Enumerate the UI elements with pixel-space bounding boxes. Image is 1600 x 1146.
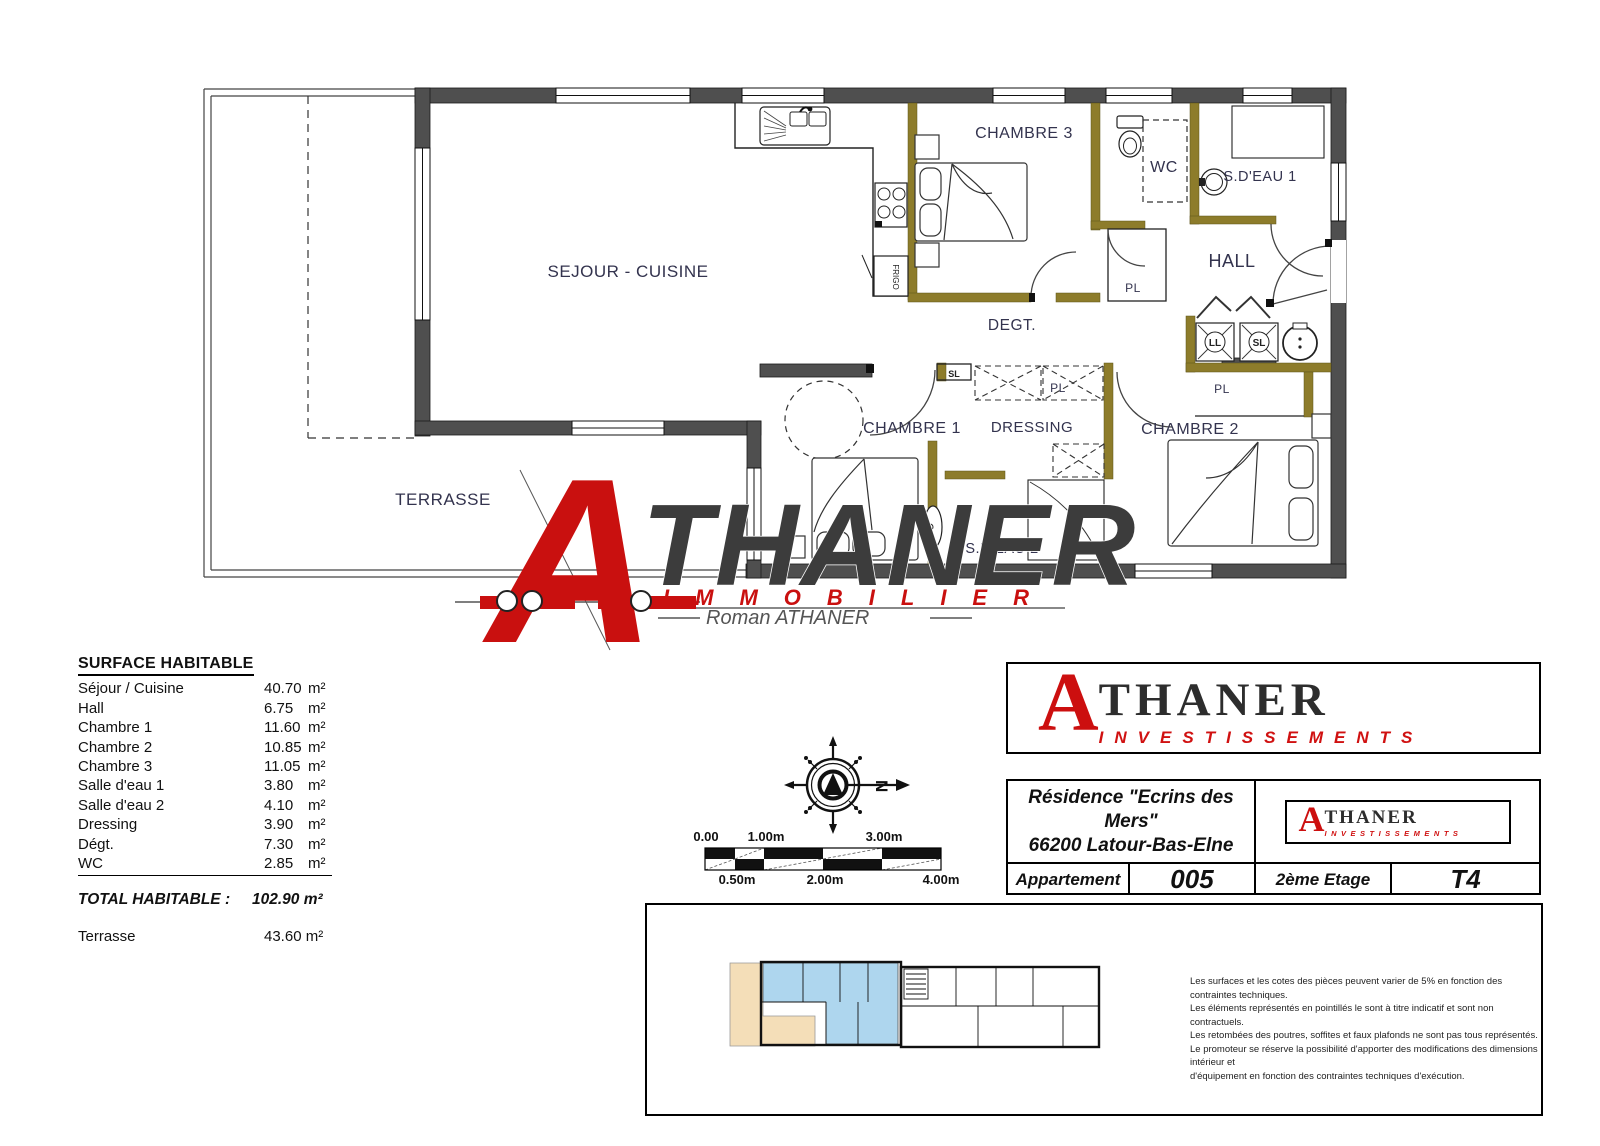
apartment-info-row: Appartement 005 2ème Etage T4 bbox=[1008, 862, 1539, 895]
floor-label: 2ème Etage bbox=[1256, 864, 1392, 895]
label-wc: WC bbox=[1150, 159, 1178, 176]
terrace-dashed-line bbox=[308, 96, 419, 438]
label-chambre3: CHAMBRE 3 bbox=[975, 125, 1073, 142]
table-row: Hall6.75m² bbox=[78, 699, 332, 718]
label-dressing: DRESSING bbox=[991, 419, 1073, 436]
scale-label: 0.00 bbox=[693, 829, 718, 844]
company-logo-box: A THANER INVESTISSEMENTS bbox=[1006, 662, 1541, 754]
laundry-appliances: LL SL bbox=[1196, 323, 1317, 361]
scale-label: 1.00m bbox=[748, 829, 785, 844]
table-separator bbox=[78, 875, 332, 876]
table-row: Salle d'eau 13.80m² bbox=[78, 776, 332, 795]
disclaimer-line: Le promoteur se réserve la possibilité d… bbox=[1190, 1043, 1550, 1070]
fridge-label: FRIGO bbox=[891, 264, 900, 289]
scale-label: 2.00m bbox=[807, 872, 844, 887]
logo-initial: A bbox=[1038, 669, 1099, 738]
mini-logo-cell: A THANER INVESTISSEMENTS bbox=[1256, 781, 1539, 862]
label-sejour: SEJOUR - CUISINE bbox=[547, 262, 708, 281]
logo-name: THANER bbox=[1099, 673, 1424, 727]
watermark-signature: Roman ATHANER bbox=[706, 607, 869, 629]
scale-bar: 0.00 1.00m 3.00m 0.50m 2.00m 4.00m bbox=[693, 829, 959, 887]
residence-cell: Résidence "Ecrins des Mers" 66200 Latour… bbox=[1008, 781, 1256, 862]
logo-subtitle: INVESTISSEMENTS bbox=[1099, 728, 1424, 748]
label-pl-wc: PL bbox=[1125, 281, 1141, 295]
compass-and-scale: N 0.00 1.00m 3.00m 0.50m 2.00m 4.00m bbox=[660, 715, 980, 900]
disclaimer-line: Les surfaces et les cotes des pièces peu… bbox=[1190, 975, 1550, 1002]
washer-label: LL bbox=[1209, 338, 1221, 349]
terrace-row: Terrasse 43.60 m² bbox=[78, 927, 332, 946]
label-chambre1: CHAMBRE 1 bbox=[863, 420, 961, 437]
fridge: FRIGO bbox=[862, 255, 908, 296]
table-row: Salle d'eau 24.10m² bbox=[78, 796, 332, 815]
disclaimer-line: Les éléments représentés en pointillés l… bbox=[1190, 1002, 1550, 1029]
surface-table: SURFACE HABITABLE Séjour / Cuisine40.70m… bbox=[78, 654, 332, 946]
label-sl-chambre1: SL bbox=[948, 369, 960, 379]
disclaimer-line: d'équipement en fonction des contraintes… bbox=[1190, 1070, 1550, 1084]
type-label: T4 bbox=[1392, 864, 1539, 895]
table-row: WC2.85m² bbox=[78, 854, 332, 873]
surface-table-title: SURFACE HABITABLE bbox=[78, 654, 254, 676]
logo-subtitle: INVESTISSEMENTS bbox=[1325, 829, 1463, 838]
logo-initial: A bbox=[1299, 805, 1325, 835]
floor-plan: FRIGO LL bbox=[0, 0, 1600, 660]
table-row: Chambre 111.60m² bbox=[78, 718, 332, 737]
toilet bbox=[1117, 116, 1143, 157]
scale-label: 4.00m bbox=[923, 872, 960, 887]
residence-city: 66200 Latour-Bas-Elne bbox=[1029, 834, 1234, 858]
apartment-label: Appartement bbox=[1008, 864, 1130, 895]
water-heater bbox=[1283, 326, 1317, 360]
disclaimer-text: Les surfaces et les cotes des pièces peu… bbox=[1190, 975, 1550, 1083]
residence-name: Résidence "Ecrins des Mers" bbox=[1008, 786, 1254, 834]
table-row: Dressing3.90m² bbox=[78, 815, 332, 834]
watermark-logo: A THANER IMMOBILIER Roman ATHANER bbox=[455, 429, 1137, 660]
label-chambre2: CHAMBRE 2 bbox=[1141, 421, 1239, 438]
dryer-label: SL bbox=[1253, 338, 1266, 349]
watermark-initial: A bbox=[482, 429, 657, 660]
table-row: Séjour / Cuisine40.70m² bbox=[78, 679, 332, 698]
bifold-doors bbox=[1197, 297, 1270, 318]
label-sdeau1: S.D'EAU 1 bbox=[1223, 169, 1296, 185]
location-minimap bbox=[728, 958, 1103, 1056]
disclaimer-line: Les retombées des poutres, soffites et f… bbox=[1190, 1029, 1550, 1043]
scale-label: 3.00m bbox=[866, 829, 903, 844]
compass-north-label: N bbox=[872, 780, 891, 792]
table-row: Chambre 311.05m² bbox=[78, 757, 332, 776]
bed-chambre3 bbox=[915, 135, 1027, 267]
table-row: Dégt.7.30m² bbox=[78, 835, 332, 854]
label-hall: HALL bbox=[1208, 251, 1255, 271]
label-terrasse: TERRASSE bbox=[395, 490, 491, 509]
floorplan-document: { "plan": { "room_labels": { "sejour": "… bbox=[0, 0, 1600, 1146]
label-pl-dressing: PL bbox=[1050, 381, 1066, 395]
table-row: Chambre 210.85m² bbox=[78, 738, 332, 757]
scale-label: 0.50m bbox=[719, 872, 756, 887]
label-pl-chambre2: PL bbox=[1214, 382, 1230, 396]
total-row: TOTAL HABITABLE : 102.90 m² bbox=[78, 890, 332, 909]
cooktop bbox=[875, 183, 907, 227]
project-info-block: Résidence "Ecrins des Mers" 66200 Latour… bbox=[1006, 779, 1541, 895]
mini-logo-box: A THANER INVESTISSEMENTS bbox=[1285, 800, 1511, 844]
apartment-number: 005 bbox=[1130, 864, 1256, 895]
company-logo: A THANER INVESTISSEMENTS bbox=[1038, 669, 1423, 748]
logo-name: THANER bbox=[1325, 807, 1463, 829]
kitchen-sink bbox=[760, 107, 830, 145]
label-degt: DEGT. bbox=[988, 317, 1036, 334]
